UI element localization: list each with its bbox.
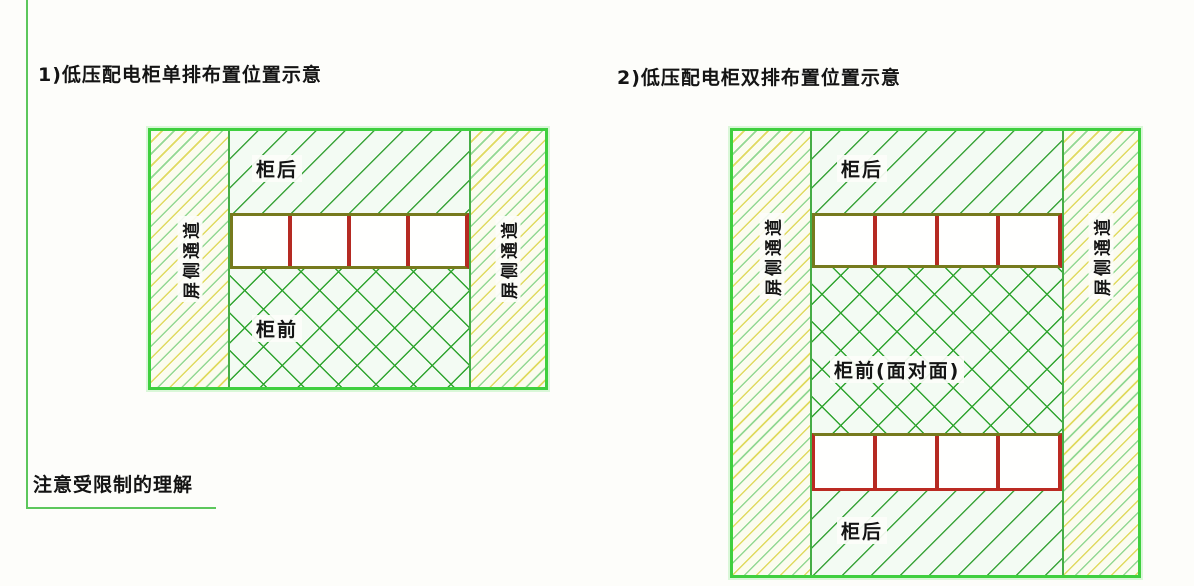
- cabinet-cell: [877, 436, 939, 488]
- note-text: 注意受限制的理解: [33, 470, 193, 497]
- diagram1-back-area: 柜后: [230, 131, 469, 213]
- diagram1-single-row-layout: 屏侧通道 柜后 柜前 屏侧通道: [148, 128, 548, 390]
- diagram1-back-label: 柜后: [252, 155, 302, 182]
- diagram2-back-bottom-area: 柜后: [812, 491, 1062, 575]
- diagram2-cabinet-row-bottom: [812, 433, 1062, 491]
- cabinet-cell: [815, 436, 877, 488]
- diagram2-double-row-layout: 屏侧通道 柜后 柜前(面对面) 柜后 屏侧通道: [730, 128, 1141, 578]
- diagram1-left-aisle: 屏侧通道: [151, 131, 230, 387]
- cabinet-cell: [1000, 436, 1058, 488]
- diagram2-left-aisle: 屏侧通道: [733, 131, 812, 575]
- diagram2-front-area: 柜前(面对面): [812, 268, 1062, 433]
- diagram2-right-aisle-label: 屏侧通道: [1089, 213, 1114, 299]
- diagram2-right-aisle: 屏侧通道: [1062, 131, 1138, 575]
- diagram1-right-aisle-label: 屏侧通道: [496, 216, 521, 302]
- cabinet-cell: [233, 216, 292, 266]
- diagram1-cabinet-row: [230, 213, 469, 269]
- left-guide-line: [26, 0, 28, 508]
- diagram1-front-label: 柜前: [252, 315, 302, 342]
- cabinet-cell: [292, 216, 351, 266]
- bottom-guide-line: [26, 507, 216, 509]
- drawing-canvas: 1)低压配电柜单排布置位置示意 2)低压配电柜双排布置位置示意 注意受限制的理解…: [0, 0, 1194, 586]
- cabinet-cell: [1000, 216, 1058, 265]
- cabinet-cell: [351, 216, 410, 266]
- cabinet-cell: [939, 216, 1001, 265]
- cabinet-cell: [877, 216, 939, 265]
- diagram2-middle-area: 柜后 柜前(面对面) 柜后: [812, 131, 1062, 575]
- diagram2-cabinet-row-top: [812, 213, 1062, 268]
- diagram2-back-top-label: 柜后: [837, 155, 887, 182]
- cabinet-cell: [939, 436, 1001, 488]
- diagram2-back-bottom-label: 柜后: [837, 517, 887, 544]
- diagram2-left-aisle-label: 屏侧通道: [759, 213, 784, 299]
- diagram2-front-label: 柜前(面对面): [830, 356, 964, 383]
- diagram2-back-top-area: 柜后: [812, 131, 1062, 213]
- cabinet-cell: [410, 216, 465, 266]
- diagram2-title: 2)低压配电柜双排布置位置示意: [617, 63, 901, 90]
- diagram1-left-aisle-label: 屏侧通道: [177, 216, 202, 302]
- diagram1-front-area: 柜前: [230, 269, 469, 387]
- diagram1-title: 1)低压配电柜单排布置位置示意: [38, 60, 322, 87]
- diagram1-right-aisle: 屏侧通道: [469, 131, 545, 387]
- cabinet-cell: [815, 216, 877, 265]
- diagram1-middle-area: 柜后 柜前: [230, 131, 469, 387]
